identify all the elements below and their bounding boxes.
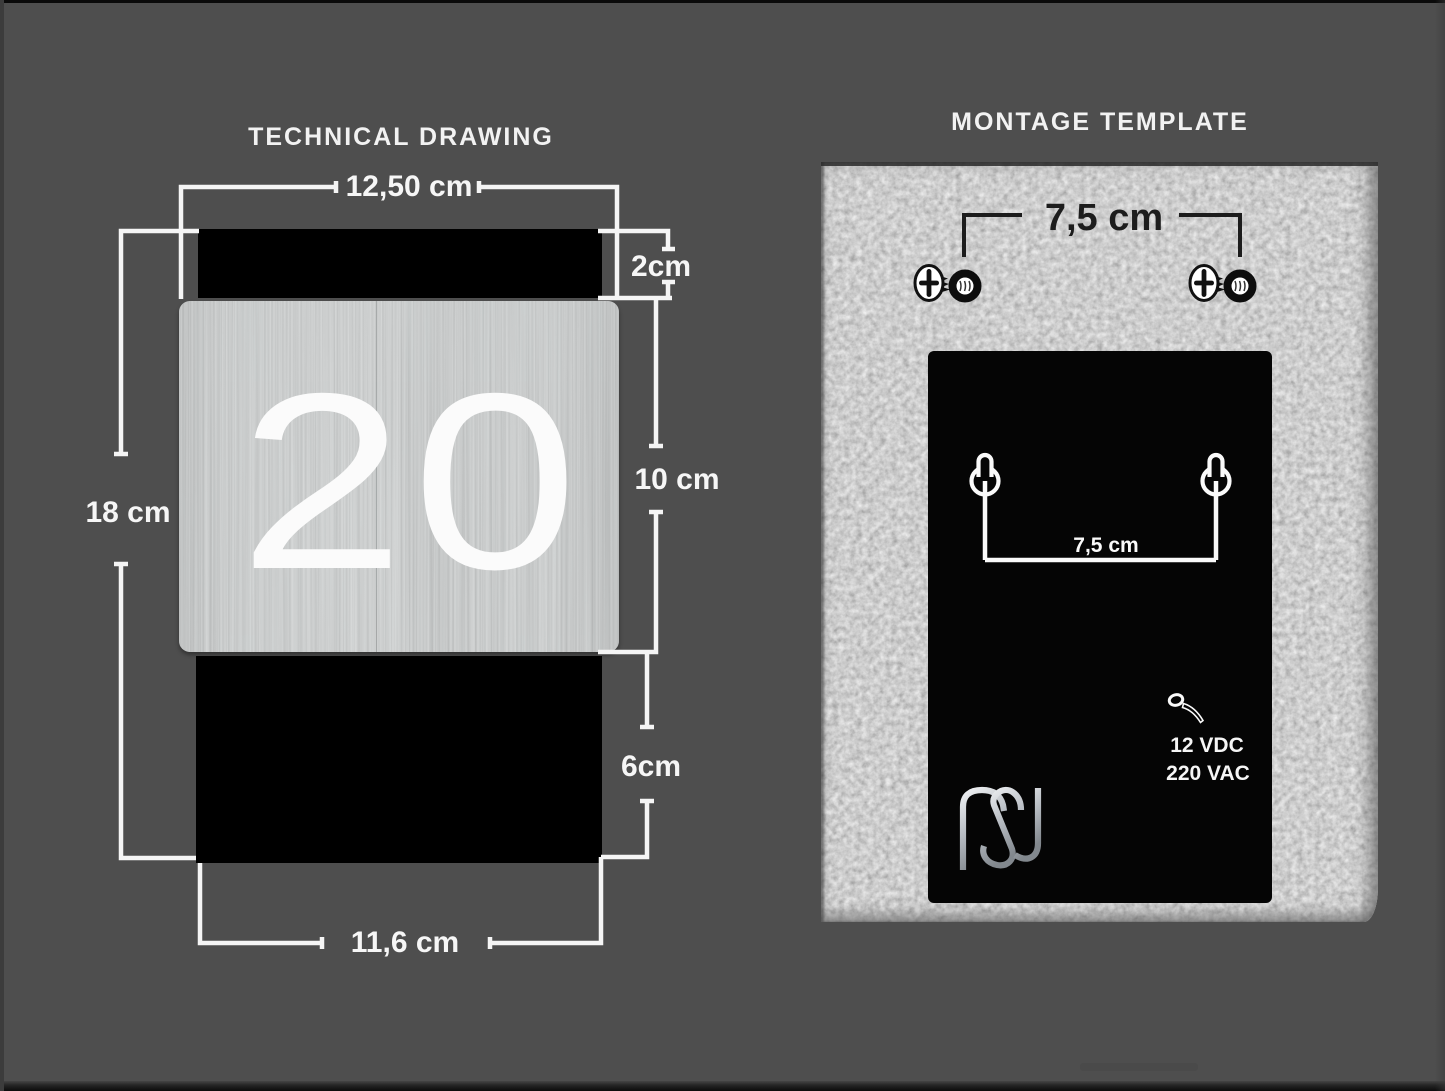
svg-text:7,5 cm: 7,5 cm xyxy=(1073,534,1138,557)
